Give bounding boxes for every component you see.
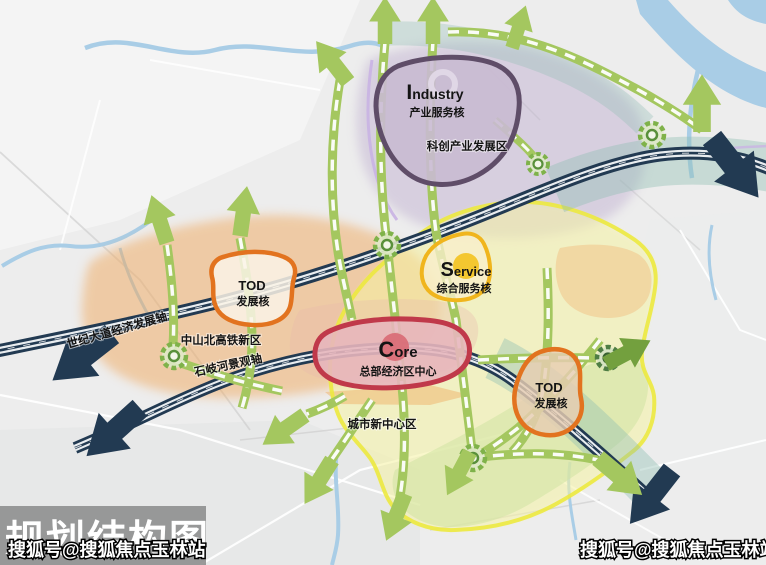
tod-east-label: TOD [535,380,562,395]
tod-east-blob: TOD 发展核 [514,349,582,435]
watermark-left: 搜狐号@搜狐焦点玉林站 [8,539,206,560]
label-zhongshan: 中山北高铁新区 [181,333,262,347]
tod-west-label: TOD [238,278,265,293]
watermark-right: 搜狐号@搜狐焦点玉林站 [580,539,766,560]
tod-west-blob: TOD 发展核 [211,252,295,325]
node-mid-east [528,154,548,174]
industry-rest: ndustry [412,86,464,102]
node-industry-south [375,233,399,257]
node-northeast [640,123,664,147]
core-initial: C [378,337,394,362]
label-kechuang: 科创产业发展区 [427,139,508,153]
tod-west-zh-label: 发展核 [236,294,270,308]
node-west [162,344,186,368]
core-zh-label: 总部经济区中心 [360,364,437,378]
service-zh-label: 综合服务核 [437,281,492,295]
industry-zh-label: 产业服务核 [410,105,465,119]
tod-east-zh-label: 发展核 [534,396,568,410]
planning-structure-map: Industry 产业服务核 Service 综合服务核 Core 总部经济区中… [0,0,766,565]
label-chengshi: 城市新中心区 [348,417,417,431]
service-initial: S [441,259,454,281]
main-core-blob: Core 总部经济区中心 [315,319,470,388]
map-canvas: Industry 产业服务核 Service 综合服务核 Core 总部经济区中… [0,0,766,565]
core-rest: ore [394,344,417,361]
service-rest: ervice [454,264,492,279]
